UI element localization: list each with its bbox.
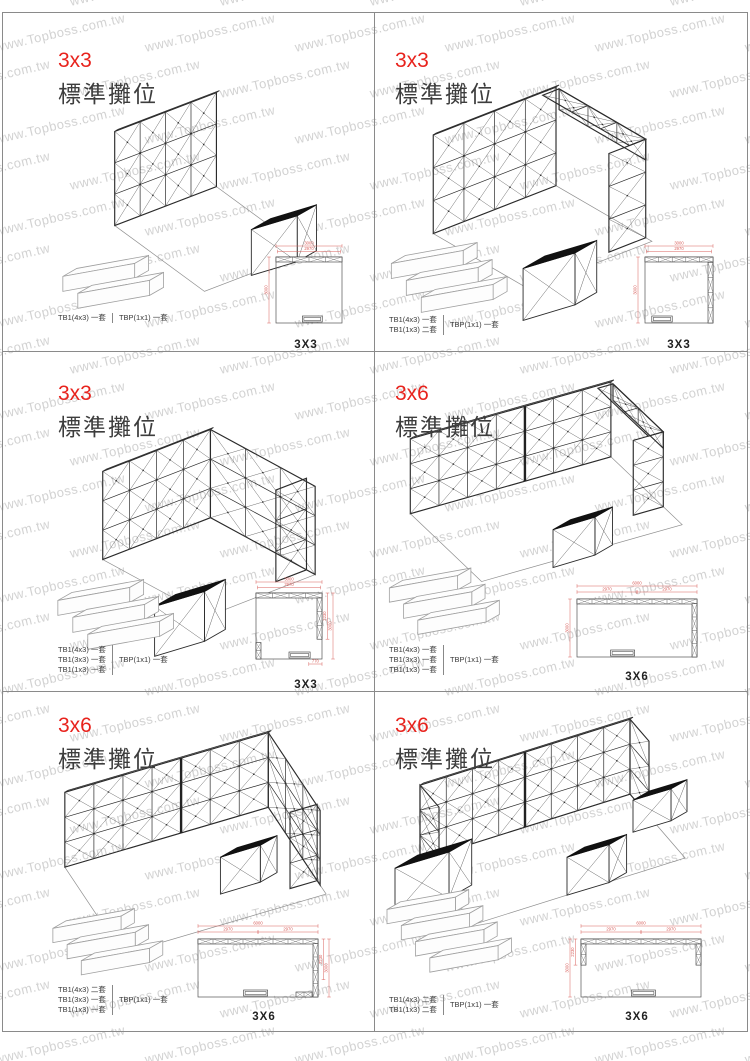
part-item: TBP(1x1) 一套 — [450, 1000, 499, 1010]
part-item: TB1(4x3) 二套 — [58, 985, 106, 995]
svg-text:3000: 3000 — [632, 285, 637, 295]
svg-text:6000: 6000 — [632, 580, 642, 585]
parts-list: TB1(4x3) 二套TB1(3x3) 一套TB1(1x3) 一套 TBP(1x… — [58, 985, 168, 1015]
svg-text:2970: 2970 — [283, 927, 293, 932]
floor-plan: 6000297029703000 3X6 — [551, 573, 723, 683]
floor-plan: 3000297022303000770 3X3 — [242, 573, 370, 691]
booth-panel-3x6-corner: 3x6 標準攤位 TB1(4x3) 二套TB1(3x3) 一套TB1(1x3) … — [3, 692, 375, 1031]
lattice-wall — [420, 717, 633, 860]
lattice-wall — [103, 428, 214, 560]
truss-beam — [598, 384, 663, 448]
lattice-wall — [609, 139, 646, 252]
podium-counter — [220, 835, 277, 893]
part-item: TB1(4x3) 一套 — [389, 315, 437, 325]
booth-panel-3x6-arch: 3x6 標準攤位 TB1(4x3) 一套TB1(3x3) 一套TB1(1x3) … — [375, 352, 747, 691]
truss-beam — [543, 89, 646, 160]
part-item: TB1(4x3) 一套 — [58, 645, 106, 655]
floor-plan-label: 3X3 — [294, 339, 317, 351]
booth-size-title: 3x3 — [58, 382, 92, 406]
lattice-wall — [210, 430, 315, 575]
svg-text:3000: 3000 — [564, 963, 569, 973]
podium-counter — [553, 507, 613, 568]
booth-type-subtitle: 標準攤位 — [395, 408, 495, 442]
part-item: TB1(1x3) 一套 — [58, 1005, 106, 1015]
watermark-text: www.Topboss.com.tw — [218, 0, 351, 9]
part-item: TB1(1x3) 一套 — [58, 665, 106, 675]
floor-plan-diagram: 60002970297022303000 — [178, 913, 350, 1011]
parts-divider — [443, 995, 444, 1015]
svg-text:2970: 2970 — [304, 246, 314, 251]
watermark-text: www.Topboss.com.tw — [68, 0, 201, 9]
packing-cases-icon — [387, 889, 511, 972]
floor-plan-diagram: 60002970297022303000 — [551, 913, 723, 1011]
watermark-text: www.Topboss.com.tw — [368, 0, 501, 9]
svg-text:3000: 3000 — [323, 963, 328, 973]
parts-right-column: TBP(1x1) 一套 — [450, 1000, 499, 1010]
part-item: TB1(4x3) 二套 — [389, 995, 437, 1005]
part-item: TB1(3x3) 一套 — [389, 655, 437, 665]
parts-list: TB1(4x3) 一套TB1(1x3) 二套 TBP(1x1) 一套 — [389, 315, 499, 335]
parts-divider — [112, 985, 113, 1015]
booth-type-subtitle: 標準攤位 — [58, 740, 158, 774]
catalog-page: www.Topboss.com.twwww.Topboss.com.twwww.… — [0, 0, 750, 1061]
svg-text:2970: 2970 — [666, 927, 676, 932]
part-item: TB1(4x3) 一套 — [389, 645, 437, 655]
podium-counter — [523, 240, 597, 320]
part-item: TBP(1x1) 一套 — [119, 995, 168, 1005]
watermark-text: www.Topboss.com.tw — [0, 0, 52, 9]
booth-size-title: 3x6 — [395, 382, 429, 406]
svg-text:3000: 3000 — [284, 576, 294, 581]
floor-plan: 300029703000 3X3 — [615, 237, 743, 351]
part-item: TBP(1x1) 一套 — [450, 320, 499, 330]
booth-size-title: 3x6 — [395, 714, 429, 738]
parts-divider — [443, 315, 444, 335]
svg-text:3000: 3000 — [304, 241, 314, 246]
watermark-text: www.Topboss.com.tw — [668, 0, 750, 9]
packing-cases-icon — [53, 908, 163, 974]
svg-text:3000: 3000 — [263, 285, 268, 295]
svg-text:6000: 6000 — [636, 921, 646, 926]
svg-text:3000: 3000 — [564, 622, 569, 632]
svg-text:2230: 2230 — [570, 947, 575, 957]
floor-plan-diagram: 3000297022303000770 — [242, 573, 370, 679]
parts-left-column: TB1(4x3) 一套 — [58, 313, 106, 323]
part-item: TB1(3x3) 一套 — [58, 995, 106, 1005]
floor-plan: 60002970297022303000 3X6 — [551, 913, 723, 1023]
lattice-wall — [115, 91, 220, 226]
svg-text:2970: 2970 — [223, 927, 233, 932]
parts-left-column: TB1(4x3) 一套TB1(3x3) 一套TB1(1x3) 一套 — [58, 645, 106, 675]
floor-plan-label: 3X6 — [625, 671, 648, 683]
parts-right-column: TBP(1x1) 一套 — [450, 655, 499, 665]
parts-right-column: TBP(1x1) 一套 — [450, 320, 499, 330]
booth-type-subtitle: 標準攤位 — [58, 75, 158, 109]
floor-plan-label: 3X3 — [667, 339, 690, 351]
parts-left-column: TB1(4x3) 一套TB1(3x3) 一套TB1(1x3) 一套 — [389, 645, 437, 675]
svg-text:2970: 2970 — [602, 586, 612, 591]
part-item: TB1(3x3) 一套 — [58, 655, 106, 665]
lattice-wall — [410, 380, 614, 514]
parts-list: TB1(4x3) 一套 TBP(1x1) 一套 — [58, 313, 168, 323]
parts-left-column: TB1(4x3) 二套TB1(1x3) 二套 — [389, 995, 437, 1015]
parts-divider — [112, 645, 113, 675]
svg-text:2970: 2970 — [284, 582, 294, 587]
floor-plan: 60002970297022303000 3X6 — [178, 913, 350, 1023]
part-item: TB1(1x3) 二套 — [389, 1005, 437, 1015]
booth-type-subtitle: 標準攤位 — [395, 740, 495, 774]
svg-text:6000: 6000 — [253, 921, 263, 926]
svg-text:2230: 2230 — [322, 610, 327, 620]
part-item: TBP(1x1) 一套 — [450, 655, 499, 665]
svg-text:3000: 3000 — [674, 241, 684, 246]
floor-plan-diagram: 6000297029703000 — [551, 573, 723, 671]
parts-list: TB1(4x3) 二套TB1(1x3) 二套 TBP(1x1) 一套 — [389, 995, 499, 1015]
booth-type-subtitle: 標準攤位 — [395, 75, 495, 109]
parts-divider — [112, 313, 113, 323]
part-item: TB1(4x3) 一套 — [58, 313, 106, 323]
floor-plan-label: 3X6 — [625, 1011, 648, 1023]
floor-plan-label: 3X6 — [252, 1011, 275, 1023]
parts-left-column: TB1(4x3) 二套TB1(3x3) 一套TB1(1x3) 一套 — [58, 985, 106, 1015]
svg-text:2230: 2230 — [318, 954, 323, 964]
part-item: TB1(1x3) 一套 — [389, 665, 437, 675]
booth-panel-3x3-corner: 3x3 標準攤位 TB1(4x3) 一套TB1(3x3) 一套TB1(1x3) … — [3, 352, 375, 691]
booth-panel-3x3-wall: 3x3 標準攤位 TB1(4x3) 一套 TBP(1x1) 一套 3000297… — [3, 13, 375, 352]
floor-plan-label: 3X3 — [294, 679, 317, 691]
svg-text:2970: 2970 — [674, 246, 684, 251]
booth-size-title: 3x6 — [58, 714, 92, 738]
parts-right-column: TBP(1x1) 一套 — [119, 313, 168, 323]
parts-divider — [443, 645, 444, 675]
watermark-text: www.Topboss.com.tw — [518, 0, 651, 9]
booth-size-title: 3x3 — [395, 49, 429, 73]
booth-grid: 3x3 標準攤位 TB1(4x3) 一套 TBP(1x1) 一套 3000297… — [2, 12, 748, 1032]
packing-cases-icon — [63, 255, 164, 308]
floor-plan-diagram: 300029703000 — [242, 237, 370, 339]
booth-type-subtitle: 標準攤位 — [58, 408, 158, 442]
booth-panel-3x3-arch: 3x3 標準攤位 TB1(4x3) 一套TB1(1x3) 二套 TBP(1x1)… — [375, 13, 747, 352]
parts-right-column: TBP(1x1) 一套 — [119, 655, 168, 665]
booth-panel-3x6-u: 3x6 標準攤位 TB1(4x3) 二套TB1(1x3) 二套 TBP(1x1)… — [375, 692, 747, 1031]
floor-plan-diagram: 300029703000 — [615, 237, 743, 339]
svg-text:2970: 2970 — [662, 586, 672, 591]
booth-size-title: 3x3 — [58, 49, 92, 73]
parts-left-column: TB1(4x3) 一套TB1(1x3) 二套 — [389, 315, 437, 335]
parts-right-column: TBP(1x1) 一套 — [119, 995, 168, 1005]
packing-cases-icon — [389, 568, 499, 634]
svg-text:770: 770 — [312, 658, 320, 663]
part-item: TBP(1x1) 一套 — [119, 313, 168, 323]
floor-plan: 300029703000 3X3 — [242, 237, 370, 351]
svg-text:3000: 3000 — [327, 620, 332, 630]
part-item: TBP(1x1) 一套 — [119, 655, 168, 665]
part-item: TB1(1x3) 二套 — [389, 325, 437, 335]
parts-list: TB1(4x3) 一套TB1(3x3) 一套TB1(1x3) 一套 TBP(1x… — [58, 645, 168, 675]
svg-text:2970: 2970 — [606, 927, 616, 932]
parts-list: TB1(4x3) 一套TB1(3x3) 一套TB1(1x3) 一套 TBP(1x… — [389, 645, 499, 675]
packing-cases-icon — [391, 243, 507, 313]
